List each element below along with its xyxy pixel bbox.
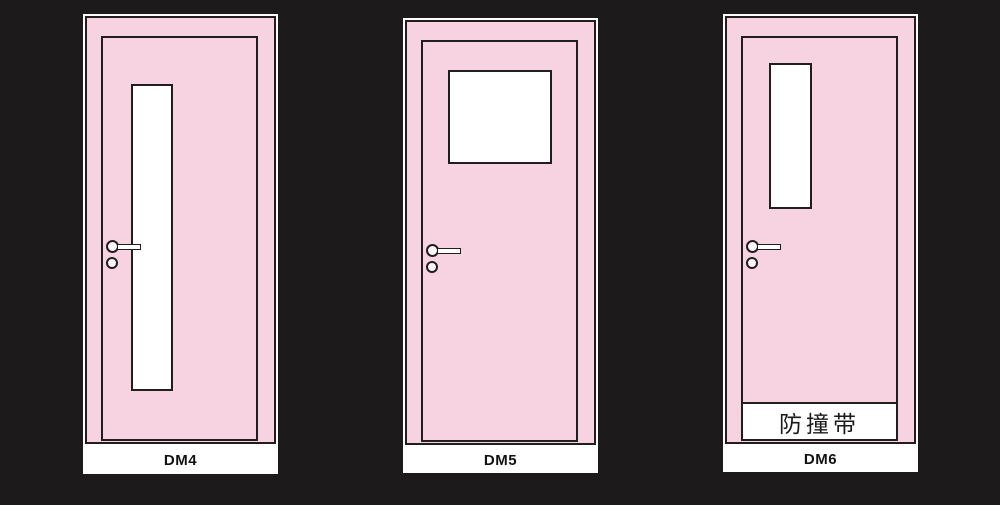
door-unit-dm4: DM4 xyxy=(83,14,278,474)
model-label: DM5 xyxy=(403,447,598,473)
door-frame-inner xyxy=(85,16,276,444)
door-frame xyxy=(403,18,598,447)
model-label-text: DM5 xyxy=(484,452,517,469)
lever-bar-icon xyxy=(437,248,461,254)
door-leaf xyxy=(101,36,258,441)
door-frame-inner: 防撞带 xyxy=(725,16,916,444)
model-label-text: DM4 xyxy=(164,452,197,469)
door-unit-dm6: 防撞带 DM6 xyxy=(723,14,918,472)
model-label: DM6 xyxy=(723,446,918,472)
lever-bar-icon xyxy=(117,244,141,250)
door-frame xyxy=(83,14,278,446)
door-leaf: 防撞带 xyxy=(741,36,898,441)
door-unit-dm5: DM5 xyxy=(403,18,598,473)
diagram-background: DM4 DM5 xyxy=(0,0,1000,505)
door-handle xyxy=(746,240,782,272)
door-frame: 防撞带 xyxy=(723,14,918,446)
door-handle xyxy=(106,240,142,272)
lock-cylinder-icon xyxy=(746,257,758,269)
bumper-strip: 防撞带 xyxy=(743,402,896,439)
glass-panel xyxy=(131,84,173,391)
bumper-strip-label: 防撞带 xyxy=(779,405,860,439)
glass-panel xyxy=(769,63,812,209)
lock-cylinder-icon xyxy=(426,261,438,273)
lever-bar-icon xyxy=(757,244,781,250)
door-leaf xyxy=(421,40,578,442)
model-label-text: DM6 xyxy=(804,451,837,468)
lock-cylinder-icon xyxy=(106,257,118,269)
glass-panel xyxy=(448,70,552,164)
model-label: DM4 xyxy=(83,446,278,474)
door-frame-inner xyxy=(405,20,596,445)
door-handle xyxy=(426,244,462,276)
